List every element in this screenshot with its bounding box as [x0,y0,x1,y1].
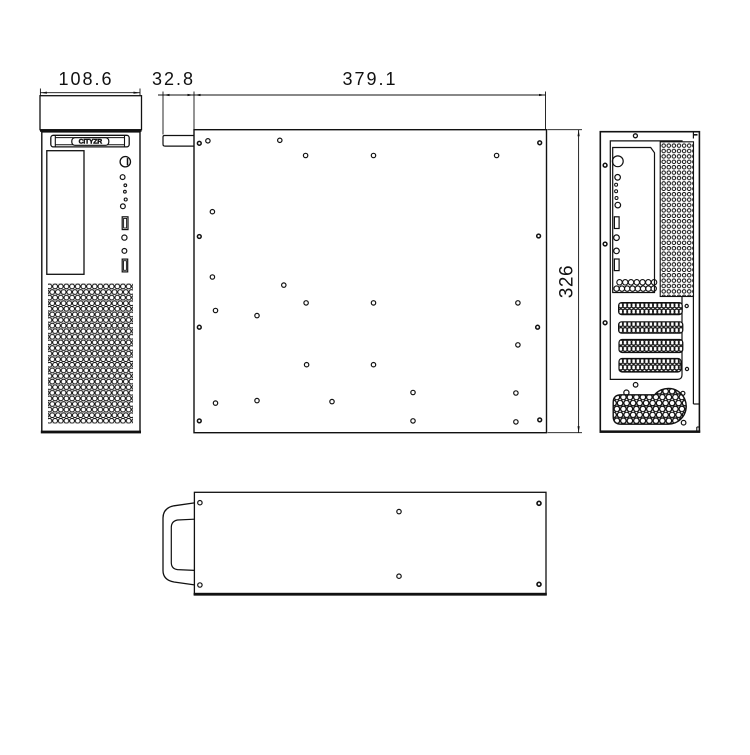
svg-text:326: 326 [557,265,578,298]
svg-text:379.1: 379.1 [342,69,397,89]
svg-text:32.8: 32.8 [152,69,195,89]
svg-text:108.6: 108.6 [58,69,113,89]
svg-text:CITYZR: CITYZR [79,139,103,146]
